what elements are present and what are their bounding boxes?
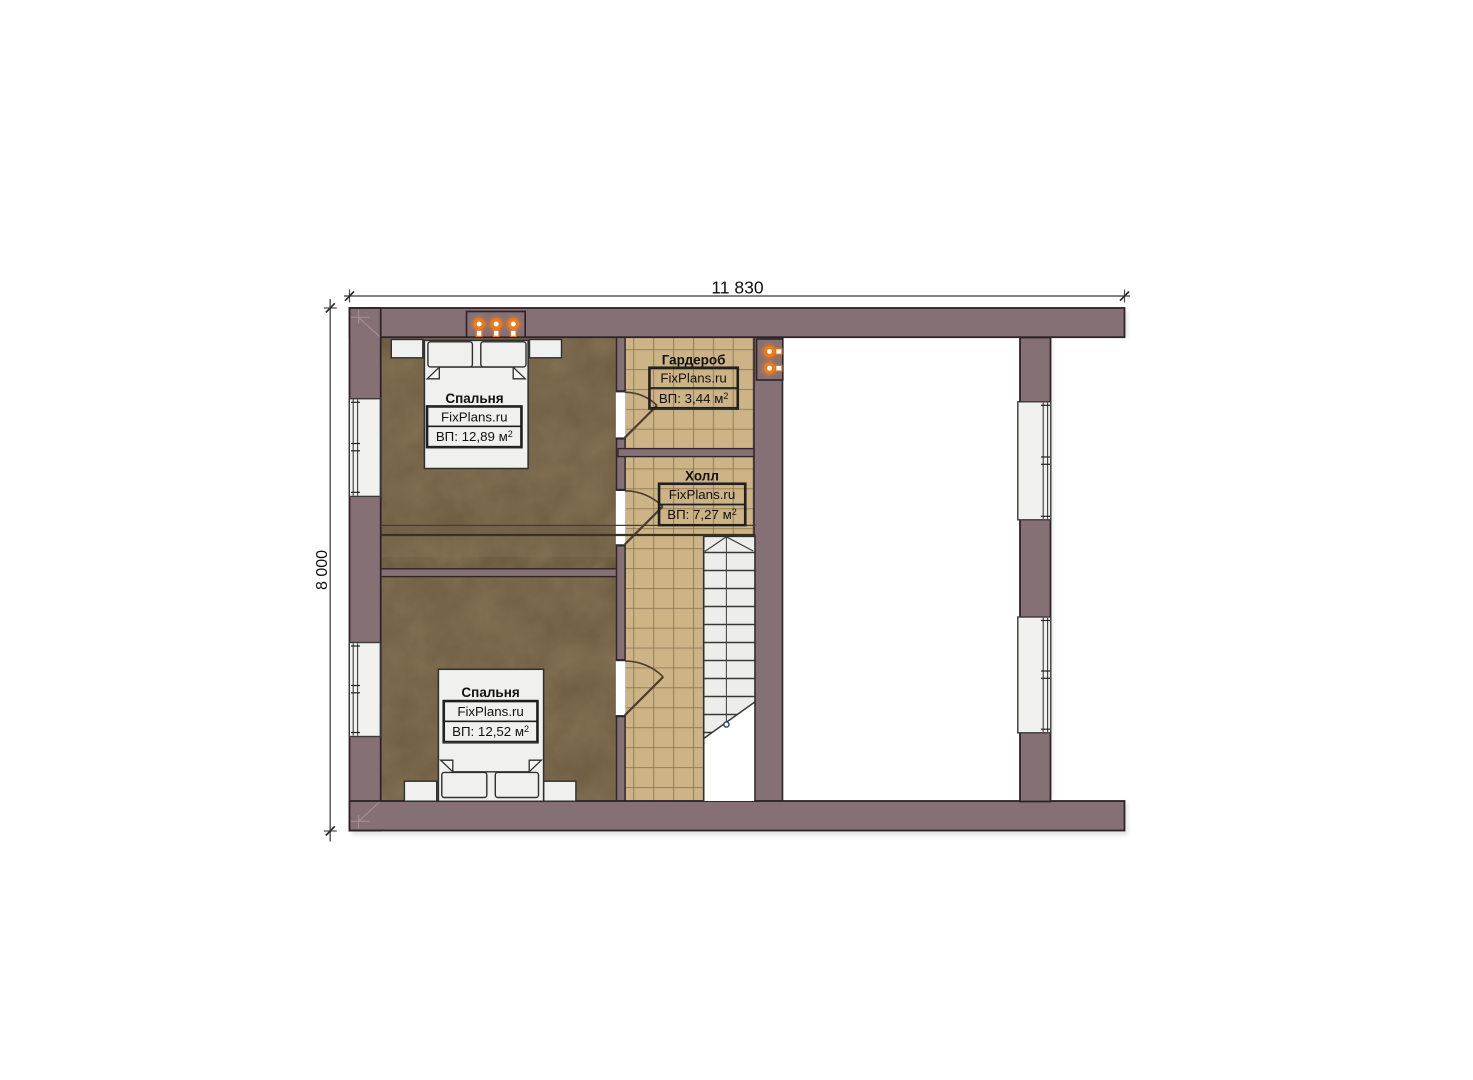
svg-text:FixPlans.ru: FixPlans.ru (660, 371, 727, 386)
svg-text:ВП: 7,27 м2: ВП: 7,27 м2 (667, 507, 737, 522)
svg-text:ВП: 3,44 м2: ВП: 3,44 м2 (659, 391, 729, 406)
svg-text:11 830: 11 830 (711, 278, 763, 298)
svg-text:FixPlans.ru: FixPlans.ru (457, 704, 524, 719)
svg-text:FixPlans.ru: FixPlans.ru (441, 409, 508, 424)
svg-text:Спальня: Спальня (445, 391, 503, 406)
svg-text:ВП: 12,52 м2: ВП: 12,52 м2 (452, 724, 529, 739)
svg-text:Холл: Холл (685, 468, 719, 483)
svg-text:Спальня: Спальня (461, 685, 519, 700)
svg-text:ВП: 12,89 м2: ВП: 12,89 м2 (436, 429, 513, 444)
svg-text:FixPlans.ru: FixPlans.ru (669, 487, 736, 502)
svg-text:8 000: 8 000 (314, 550, 331, 590)
svg-text:Гардероб: Гардероб (662, 352, 726, 367)
